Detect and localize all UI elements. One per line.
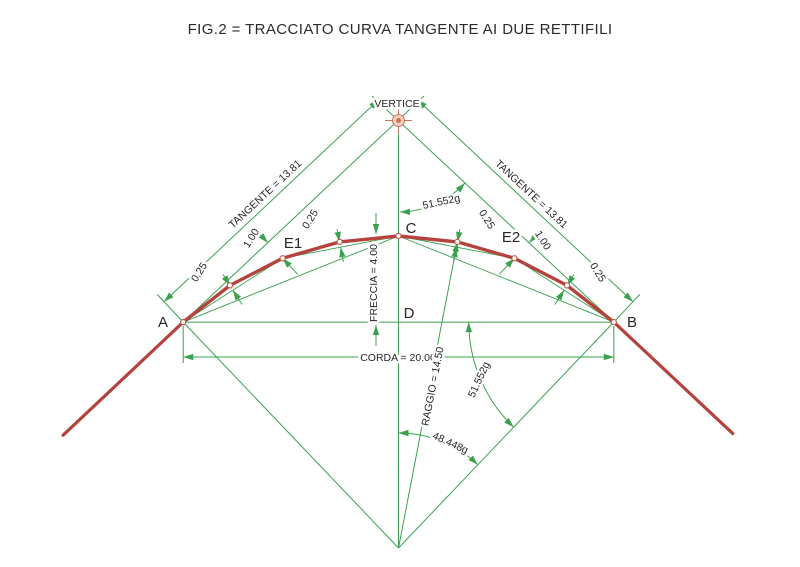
offset-tick-l2-inner (283, 258, 298, 274)
marker-p3l (337, 239, 342, 244)
marker-e1 (280, 256, 285, 261)
marker-p1r (564, 283, 569, 288)
offset-tick-l2-outer (260, 234, 268, 243)
figure-title: FIG.2 = TRACCIATO CURVA TANGENTE AI DUE … (188, 21, 613, 38)
rettifilo-left (63, 322, 183, 435)
point-label-b: B (627, 314, 637, 331)
offset-label-left-near-a: 0.25 (189, 260, 210, 284)
chord-line-cb (399, 236, 614, 322)
freccia-dim-label: FRECCIA = 4.00 (368, 244, 380, 322)
angle-label-vertex: 51.552g (422, 192, 462, 212)
marker-p1l (227, 283, 232, 288)
offset-label-right-near-c: 0.25 (476, 208, 497, 232)
vertex-dot (397, 119, 401, 123)
vertex-label: VERTICE (374, 98, 419, 110)
offset-tick-r2-inner (499, 258, 514, 274)
offset-label-right-near-b: 0.25 (587, 261, 608, 285)
tangent-line-left (183, 96, 424, 322)
corda-dim-label: CORDA = 20.00 (360, 352, 436, 364)
offset-tick-l1-inner (233, 290, 242, 304)
alignment-and-curve (63, 107, 733, 435)
marker-p3r (455, 239, 460, 244)
angle-label-chord-radius: 51.552g (466, 360, 493, 400)
construction-lines (183, 96, 614, 548)
offset-tick-r3-inner (454, 247, 457, 262)
offset-label-left-mid: 1.00 (241, 226, 262, 250)
marker-e2 (512, 256, 517, 261)
offset-tick-l3-inner (341, 247, 344, 262)
marker-a (181, 320, 186, 325)
curve-diagram: FIG.2 = TRACCIATO CURVA TANGENTE AI DUE … (0, 0, 800, 567)
point-label-e2: E2 (502, 229, 520, 246)
tangent-line-right (372, 96, 614, 322)
offset-tick-r1-inner (555, 290, 564, 304)
marker-c (396, 233, 401, 238)
offset-label-left-near-c: 0.25 (300, 207, 321, 231)
point-label-a: A (158, 314, 168, 331)
drawing-canvas: FIG.2 = TRACCIATO CURVA TANGENTE AI DUE … (0, 0, 800, 567)
point-label-d: D (404, 305, 415, 322)
point-label-e1: E1 (284, 235, 302, 252)
rettifilo-right (614, 322, 733, 434)
marker-b (611, 320, 616, 325)
point-label-c: C (406, 220, 417, 237)
angle-label-center: 48.448g (431, 430, 471, 457)
